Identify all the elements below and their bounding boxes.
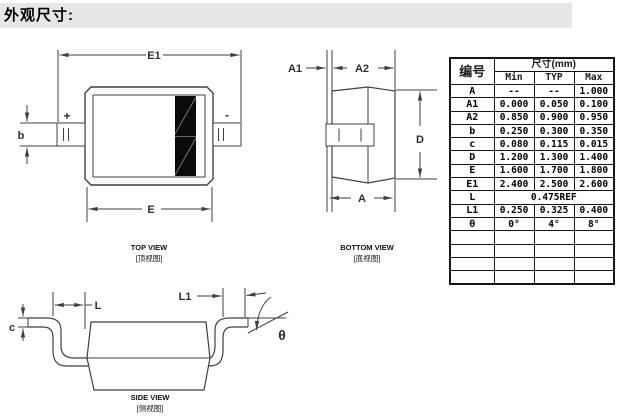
cell-designator: θ bbox=[450, 217, 494, 230]
table-row bbox=[450, 257, 614, 270]
dim-label-c: c bbox=[9, 322, 15, 334]
dim-label-a2: A2 bbox=[355, 63, 369, 75]
polarity-plus-sign: + bbox=[63, 109, 70, 123]
cell-typ: 0.300 bbox=[534, 124, 574, 137]
cell-max: 0.350 bbox=[574, 124, 614, 137]
cell-max bbox=[574, 231, 614, 244]
cell-designator: b bbox=[450, 124, 494, 137]
anode-lead bbox=[57, 123, 85, 146]
table-row bbox=[450, 244, 614, 257]
table-row: c0.0800.1150.015 bbox=[450, 138, 614, 151]
cell-min: 2.400 bbox=[494, 178, 534, 191]
datasheet-page: 外观尺寸: bbox=[0, 0, 618, 417]
dimension-table-body: A----1.000A10.0000.0500.100A20.8500.9000… bbox=[450, 85, 614, 285]
cell-min: 0.250 bbox=[494, 204, 534, 217]
dim-label-e1: E1 bbox=[147, 50, 160, 62]
cell-designator: E1 bbox=[450, 178, 494, 191]
cell-designator bbox=[450, 271, 494, 285]
cathode-band-mark bbox=[175, 96, 196, 176]
cell-min: 1.200 bbox=[494, 151, 534, 164]
bottom-view-caption: BOTTOM VIEW bbox=[340, 243, 395, 252]
table-row: E12.4002.5002.600 bbox=[450, 178, 614, 191]
cell-max bbox=[574, 271, 614, 285]
cell-max: 0.100 bbox=[574, 98, 614, 111]
table-row: A20.8500.9000.950 bbox=[450, 111, 614, 124]
dim-label-e: E bbox=[147, 204, 154, 216]
polarity-minus-sign: - bbox=[225, 108, 229, 122]
table-row: D1.2001.3001.400 bbox=[450, 151, 614, 164]
bottom-lead bbox=[326, 124, 374, 146]
cell-typ: -- bbox=[534, 85, 574, 98]
cell-typ: 0.325 bbox=[534, 204, 574, 217]
cell-designator bbox=[450, 244, 494, 257]
top-view: E1 E b + - TOP VIEW [顶视图] bbox=[18, 50, 241, 263]
cell-typ: 0.050 bbox=[534, 98, 574, 111]
cell-min: 0.000 bbox=[494, 98, 534, 111]
header-min: Min bbox=[494, 72, 534, 85]
table-row: A----1.000 bbox=[450, 85, 614, 98]
dim-label-theta: θ bbox=[278, 327, 286, 343]
side-view: c L L1 θ SIDE VIEW [侧视图] bbox=[9, 288, 288, 413]
side-view-caption-cn: [侧视图] bbox=[137, 403, 164, 413]
cell-max: 1.000 bbox=[574, 85, 614, 98]
cell-designator: L bbox=[450, 191, 494, 204]
cell-typ bbox=[534, 244, 574, 257]
table-header-row: 编号 尺寸(mm) bbox=[450, 58, 614, 72]
bottom-view-caption-cn: [底视图] bbox=[354, 253, 381, 263]
cathode-lead bbox=[213, 123, 241, 146]
dim-label-a: A bbox=[358, 193, 366, 205]
cell-max: 0.400 bbox=[574, 204, 614, 217]
cell-min: 0.850 bbox=[494, 111, 534, 124]
cell-min bbox=[494, 244, 534, 257]
cell-max: 0.015 bbox=[574, 138, 614, 151]
table-row bbox=[450, 231, 614, 244]
table-row: A10.0000.0500.100 bbox=[450, 98, 614, 111]
cell-designator: L1 bbox=[450, 204, 494, 217]
cell-designator: A2 bbox=[450, 111, 494, 124]
cell-max: 1.400 bbox=[574, 151, 614, 164]
top-view-caption-cn: [顶视图] bbox=[136, 253, 163, 263]
dim-label-l: L bbox=[95, 300, 102, 312]
cell-typ: 0.115 bbox=[534, 138, 574, 151]
cell-min: 1.600 bbox=[494, 164, 534, 177]
cell-max: 2.600 bbox=[574, 178, 614, 191]
header-designator: 编号 bbox=[450, 58, 494, 85]
cell-typ bbox=[534, 257, 574, 270]
cell-designator bbox=[450, 257, 494, 270]
dim-label-d: D bbox=[416, 134, 424, 146]
cell-min: 0.250 bbox=[494, 124, 534, 137]
table-row: L0.475REF bbox=[450, 191, 614, 204]
top-view-caption: TOP VIEW bbox=[131, 243, 168, 252]
table-row: θ0°4°8° bbox=[450, 217, 614, 230]
table-row: b0.2500.3000.350 bbox=[450, 124, 614, 137]
cell-typ: 1.700 bbox=[534, 164, 574, 177]
cell-min: 0° bbox=[494, 217, 534, 230]
dim-label-b: b bbox=[18, 130, 25, 142]
cell-typ: 1.300 bbox=[534, 151, 574, 164]
table-row: E1.6001.7001.800 bbox=[450, 164, 614, 177]
cell-typ bbox=[534, 231, 574, 244]
cell-max: 1.800 bbox=[574, 164, 614, 177]
header-size-mm: 尺寸(mm) bbox=[494, 58, 614, 72]
bottom-view: A1 A2 A D BOTTOM VIEW [底视图] bbox=[288, 50, 437, 263]
cell-max bbox=[574, 244, 614, 257]
dim-label-l1: L1 bbox=[179, 291, 192, 303]
cell-designator: A1 bbox=[450, 98, 494, 111]
cell-designator bbox=[450, 231, 494, 244]
cell-typ: 2.500 bbox=[534, 178, 574, 191]
cell-min bbox=[494, 271, 534, 285]
header-max: Max bbox=[574, 72, 614, 85]
cell-typ bbox=[534, 271, 574, 285]
header-typ: TYP bbox=[534, 72, 574, 85]
cell-min bbox=[494, 231, 534, 244]
cell-min bbox=[494, 257, 534, 270]
table-row bbox=[450, 271, 614, 285]
cell-max: 0.950 bbox=[574, 111, 614, 124]
cell-designator: D bbox=[450, 151, 494, 164]
side-view-caption: SIDE VIEW bbox=[131, 393, 171, 402]
cell-max bbox=[574, 257, 614, 270]
dimension-table: 编号 尺寸(mm) Min TYP Max A----1.000A10.0000… bbox=[449, 57, 615, 285]
cell-min: -- bbox=[494, 85, 534, 98]
cell-min: 0.080 bbox=[494, 138, 534, 151]
cell-max: 8° bbox=[574, 217, 614, 230]
table-row: L10.2500.3250.400 bbox=[450, 204, 614, 217]
cell-span-value: 0.475REF bbox=[494, 191, 614, 204]
dim-label-a1: A1 bbox=[288, 63, 302, 75]
cell-designator: c bbox=[450, 138, 494, 151]
cell-designator: E bbox=[450, 164, 494, 177]
cell-designator: A bbox=[450, 85, 494, 98]
cell-typ: 4° bbox=[534, 217, 574, 230]
cell-typ: 0.900 bbox=[534, 111, 574, 124]
